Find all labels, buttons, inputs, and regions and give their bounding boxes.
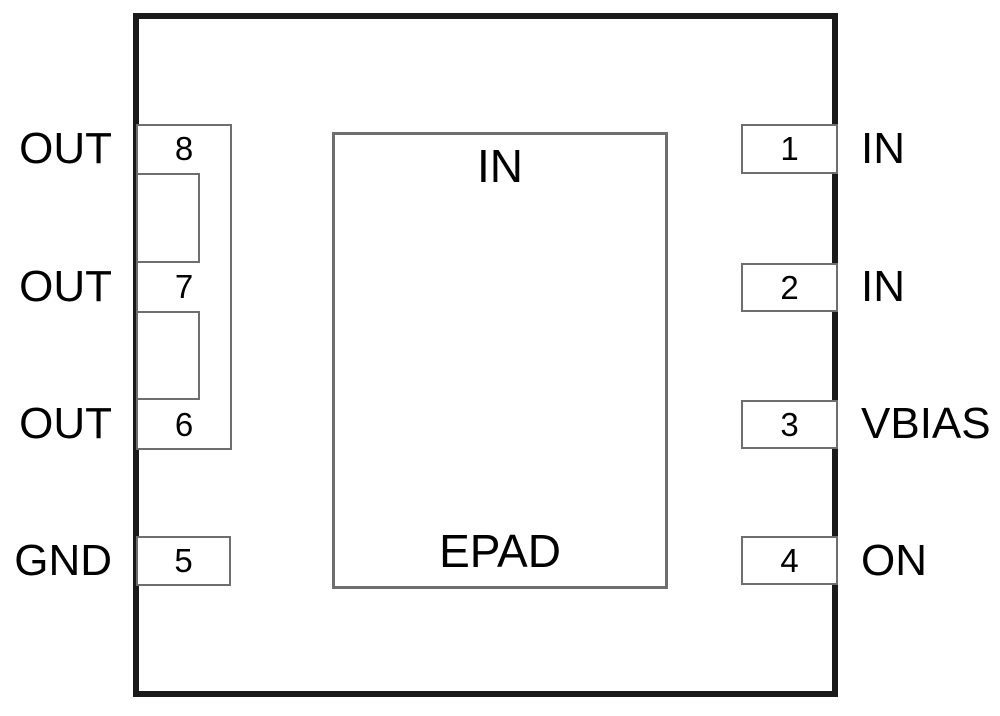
pin-2-pad: 2	[741, 263, 838, 312]
epad-bottom-label: EPAD	[335, 528, 665, 574]
pin-7-pad: 7	[136, 263, 232, 311]
epad-region: IN EPAD	[332, 132, 668, 589]
pin-4-pad: 4	[741, 536, 838, 585]
pin-1-signal-label: IN	[861, 124, 1000, 174]
pin-bridge-8-7	[136, 173, 200, 263]
pin-2-signal-label: IN	[861, 262, 1000, 312]
pin-6-pad: 6	[136, 400, 232, 450]
pin-7-signal-label: OUT	[0, 262, 112, 312]
epad-top-label: IN	[335, 143, 665, 189]
pin-3-pad: 3	[741, 400, 838, 449]
pin-1-pad: 1	[741, 124, 838, 174]
pin-3-signal-label: VBIAS	[861, 399, 1000, 449]
pin-8-signal-label: OUT	[0, 124, 112, 174]
pinout-diagram: IN EPAD 8 7 6 5 1 2 3 4 OUT OUT OUT GND …	[0, 0, 1000, 716]
pin-6-signal-label: OUT	[0, 399, 112, 449]
pin-4-signal-label: ON	[861, 536, 1000, 586]
pin-5-pad: 5	[136, 536, 231, 586]
pin-bridge-7-6	[136, 311, 200, 400]
pin-8-pad: 8	[136, 124, 232, 173]
pin-5-signal-label: GND	[0, 536, 112, 586]
